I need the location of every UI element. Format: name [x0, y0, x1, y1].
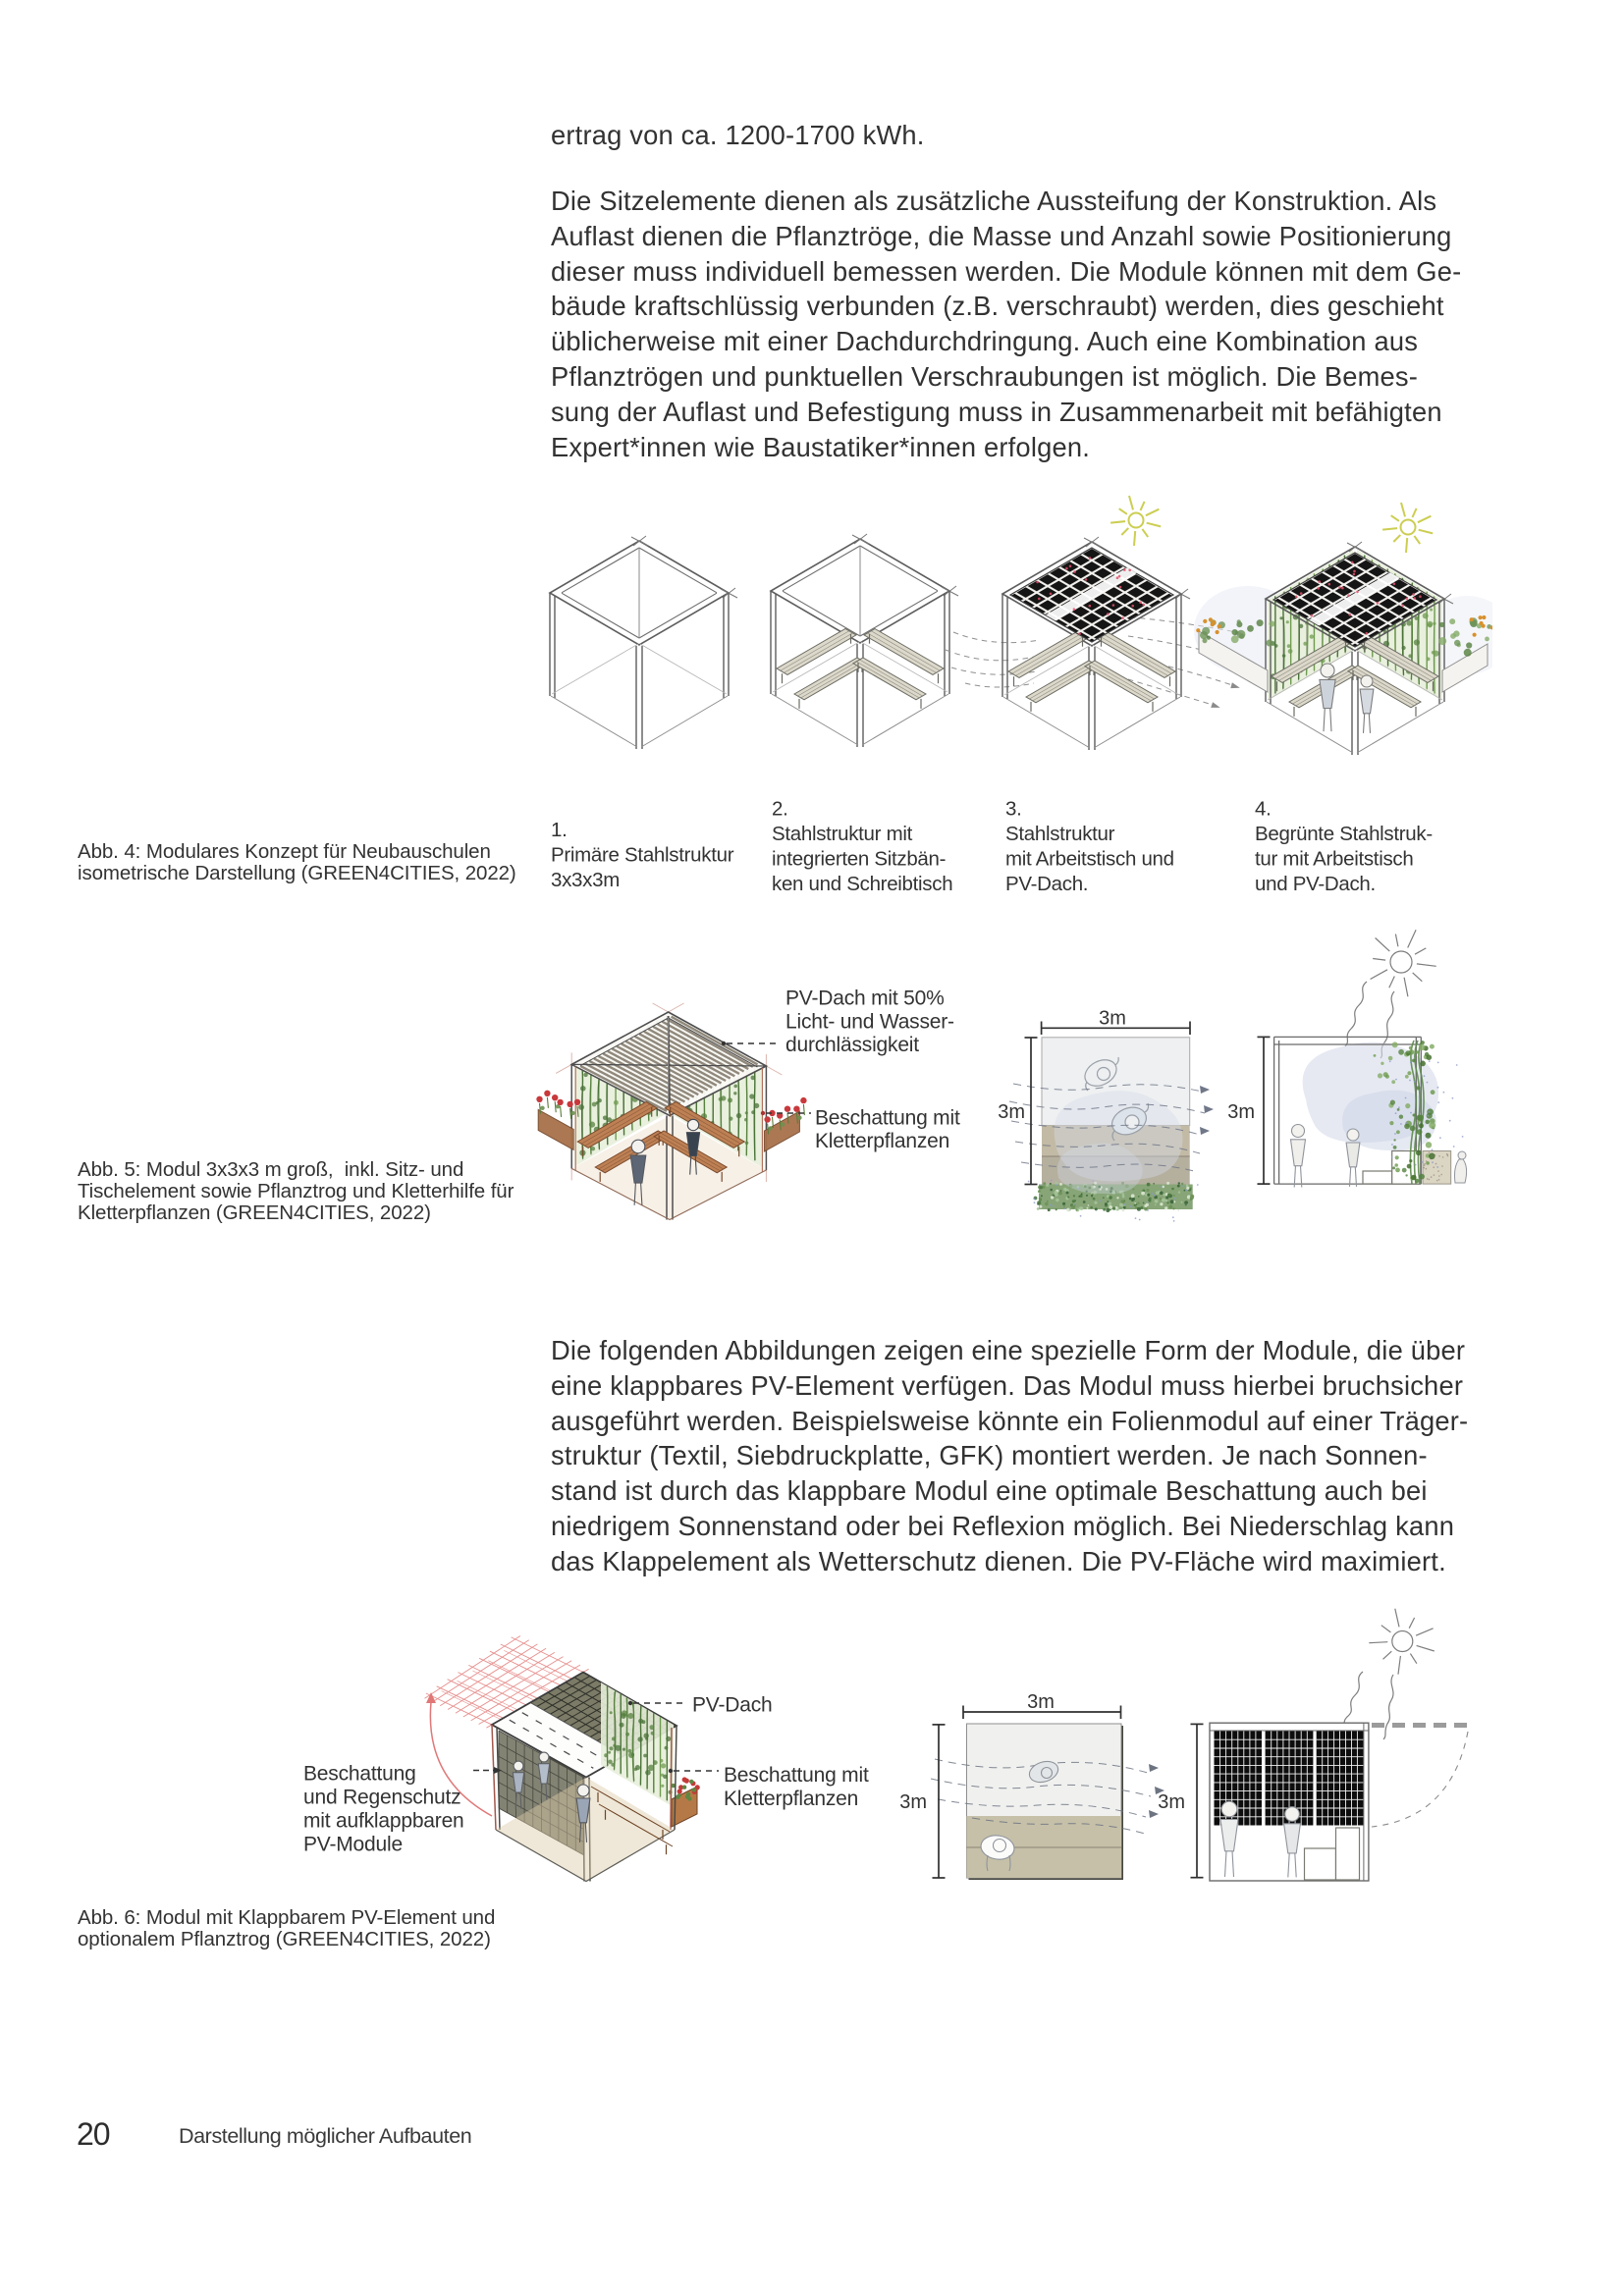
- svg-text:Primäre Stahlstruktur: Primäre Stahlstruktur: [551, 844, 734, 867]
- svg-text:PV-Dach: PV-Dach: [692, 1693, 772, 1716]
- svg-text:Stahlstruktur mit: Stahlstruktur mit: [772, 823, 913, 845]
- svg-text:Licht- und Wasser-: Licht- und Wasser-: [785, 1010, 954, 1033]
- svg-text:PV-Module: PV-Module: [303, 1834, 403, 1856]
- svg-text:3m: 3m: [1227, 1101, 1255, 1123]
- svg-text:Kletterpflanzen: Kletterpflanzen: [815, 1130, 949, 1152]
- svg-text:PV-Dach.: PV-Dach.: [1005, 873, 1088, 895]
- svg-text:Beschattung mit: Beschattung mit: [815, 1106, 960, 1129]
- svg-text:Beschattung: Beschattung: [303, 1762, 416, 1785]
- svg-text:2.: 2.: [772, 798, 788, 821]
- svg-text:mit Arbeitstisch und: mit Arbeitstisch und: [1005, 848, 1174, 871]
- svg-text:und Regenschutz: und Regenschutz: [303, 1786, 460, 1808]
- svg-text:und PV-Dach.: und PV-Dach.: [1255, 873, 1376, 895]
- svg-text:ken und Schreibtisch: ken und Schreibtisch: [772, 873, 952, 895]
- svg-text:4.: 4.: [1255, 798, 1272, 821]
- svg-text:Begrünte Stahlstruk-: Begrünte Stahlstruk-: [1255, 823, 1433, 845]
- svg-text:Beschattung mit: Beschattung mit: [724, 1764, 869, 1787]
- svg-text:3m: 3m: [1158, 1791, 1185, 1813]
- svg-text:3m: 3m: [899, 1791, 927, 1813]
- svg-text:3.: 3.: [1005, 798, 1022, 821]
- svg-text:3m: 3m: [1027, 1691, 1055, 1713]
- svg-text:PV-Dach mit 50%: PV-Dach mit 50%: [785, 988, 945, 1010]
- svg-text:3m: 3m: [998, 1101, 1025, 1123]
- svg-text:integrierten Sitzbän-: integrierten Sitzbän-: [772, 848, 946, 871]
- svg-text:3x3x3m: 3x3x3m: [551, 869, 620, 891]
- svg-text:Kletterpflanzen: Kletterpflanzen: [724, 1788, 858, 1810]
- svg-text:tur mit Arbeitstisch: tur mit Arbeitstisch: [1255, 848, 1413, 871]
- svg-text:durchlässigkeit: durchlässigkeit: [785, 1034, 919, 1056]
- svg-text:3m: 3m: [1099, 1008, 1126, 1030]
- svg-text:Stahlstruktur: Stahlstruktur: [1005, 823, 1115, 845]
- svg-text:mit aufklappbaren: mit aufklappbaren: [303, 1810, 464, 1833]
- svg-text:1.: 1.: [551, 819, 568, 841]
